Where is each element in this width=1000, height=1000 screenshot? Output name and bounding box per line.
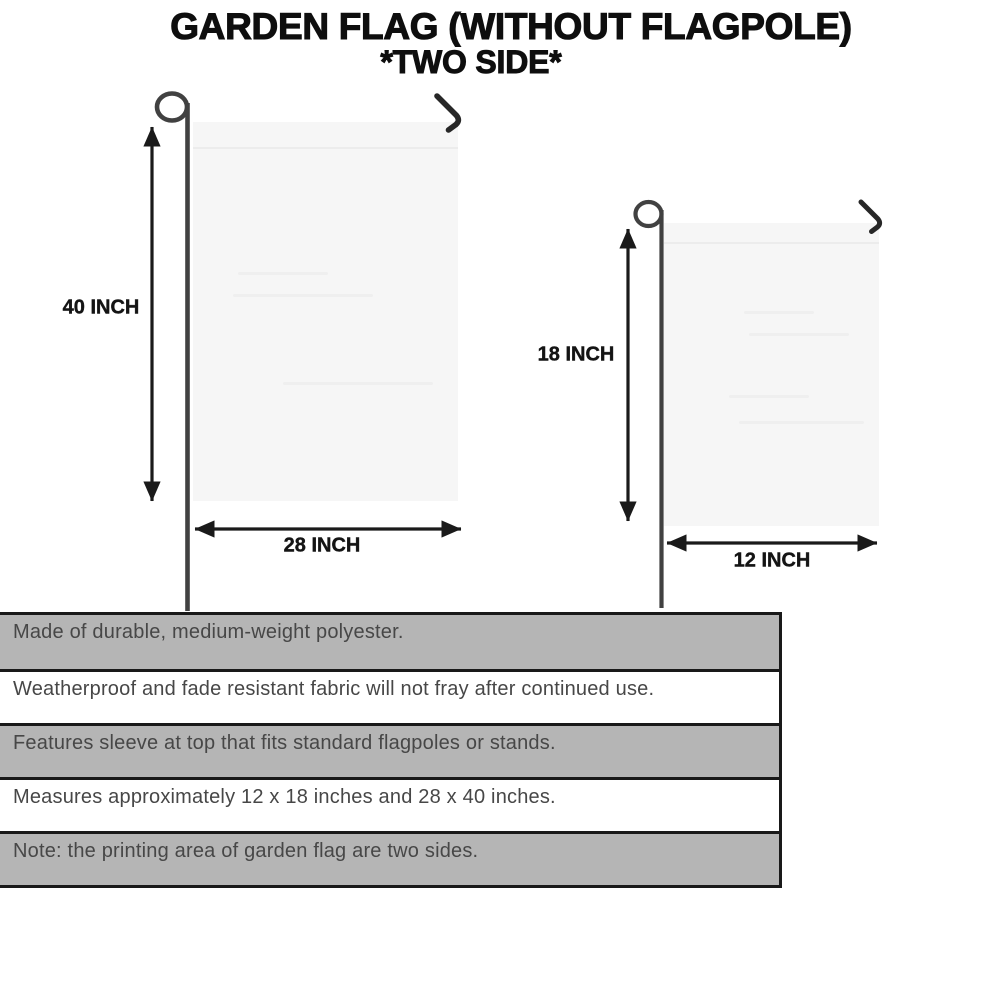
small-flag-panel xyxy=(664,223,879,526)
small-flag-height-label: 18 INCH xyxy=(538,344,615,367)
spec-row: Features sleeve at top that fits standar… xyxy=(0,723,779,777)
spec-row: Made of durable, medium-weight polyester… xyxy=(0,615,779,669)
spec-text: Weatherproof and fade resistant fabric w… xyxy=(13,678,654,700)
large-flag-height-label: 40 INCH xyxy=(63,297,140,320)
garden-flag-infographic: GARDEN FLAG (WITHOUT FLAGPOLE) *TWO SIDE… xyxy=(0,0,1000,1000)
spec-row: Note: the printing area of garden flag a… xyxy=(0,831,779,885)
fold-line xyxy=(749,333,849,336)
fold-line xyxy=(729,395,809,398)
spec-text: Features sleeve at top that fits standar… xyxy=(13,732,556,754)
large-pole-loop-icon xyxy=(157,94,187,121)
large-flag-width-label: 28 INCH xyxy=(284,535,361,558)
large-flag-panel xyxy=(193,122,458,501)
fold-line xyxy=(283,382,433,385)
small-flag-width-label: 12 INCH xyxy=(734,550,811,573)
sleeve-seam xyxy=(193,147,458,149)
fold-line xyxy=(744,311,814,314)
fold-line xyxy=(233,294,373,297)
spec-text: Measures approximately 12 x 18 inches an… xyxy=(13,786,556,808)
spec-text: Note: the printing area of garden flag a… xyxy=(13,840,478,862)
page-subtitle: *TWO SIDE* xyxy=(380,44,561,81)
page-title: GARDEN FLAG (WITHOUT FLAGPOLE) xyxy=(170,6,852,48)
spec-table: Made of durable, medium-weight polyester… xyxy=(0,612,782,888)
sleeve-seam xyxy=(664,242,879,244)
fold-line xyxy=(739,421,864,424)
spec-row: Measures approximately 12 x 18 inches an… xyxy=(0,777,779,831)
fold-line xyxy=(238,272,328,275)
spec-text: Made of durable, medium-weight polyester… xyxy=(13,621,404,643)
small-pole-loop-icon xyxy=(636,202,662,226)
spec-row: Weatherproof and fade resistant fabric w… xyxy=(0,669,779,723)
